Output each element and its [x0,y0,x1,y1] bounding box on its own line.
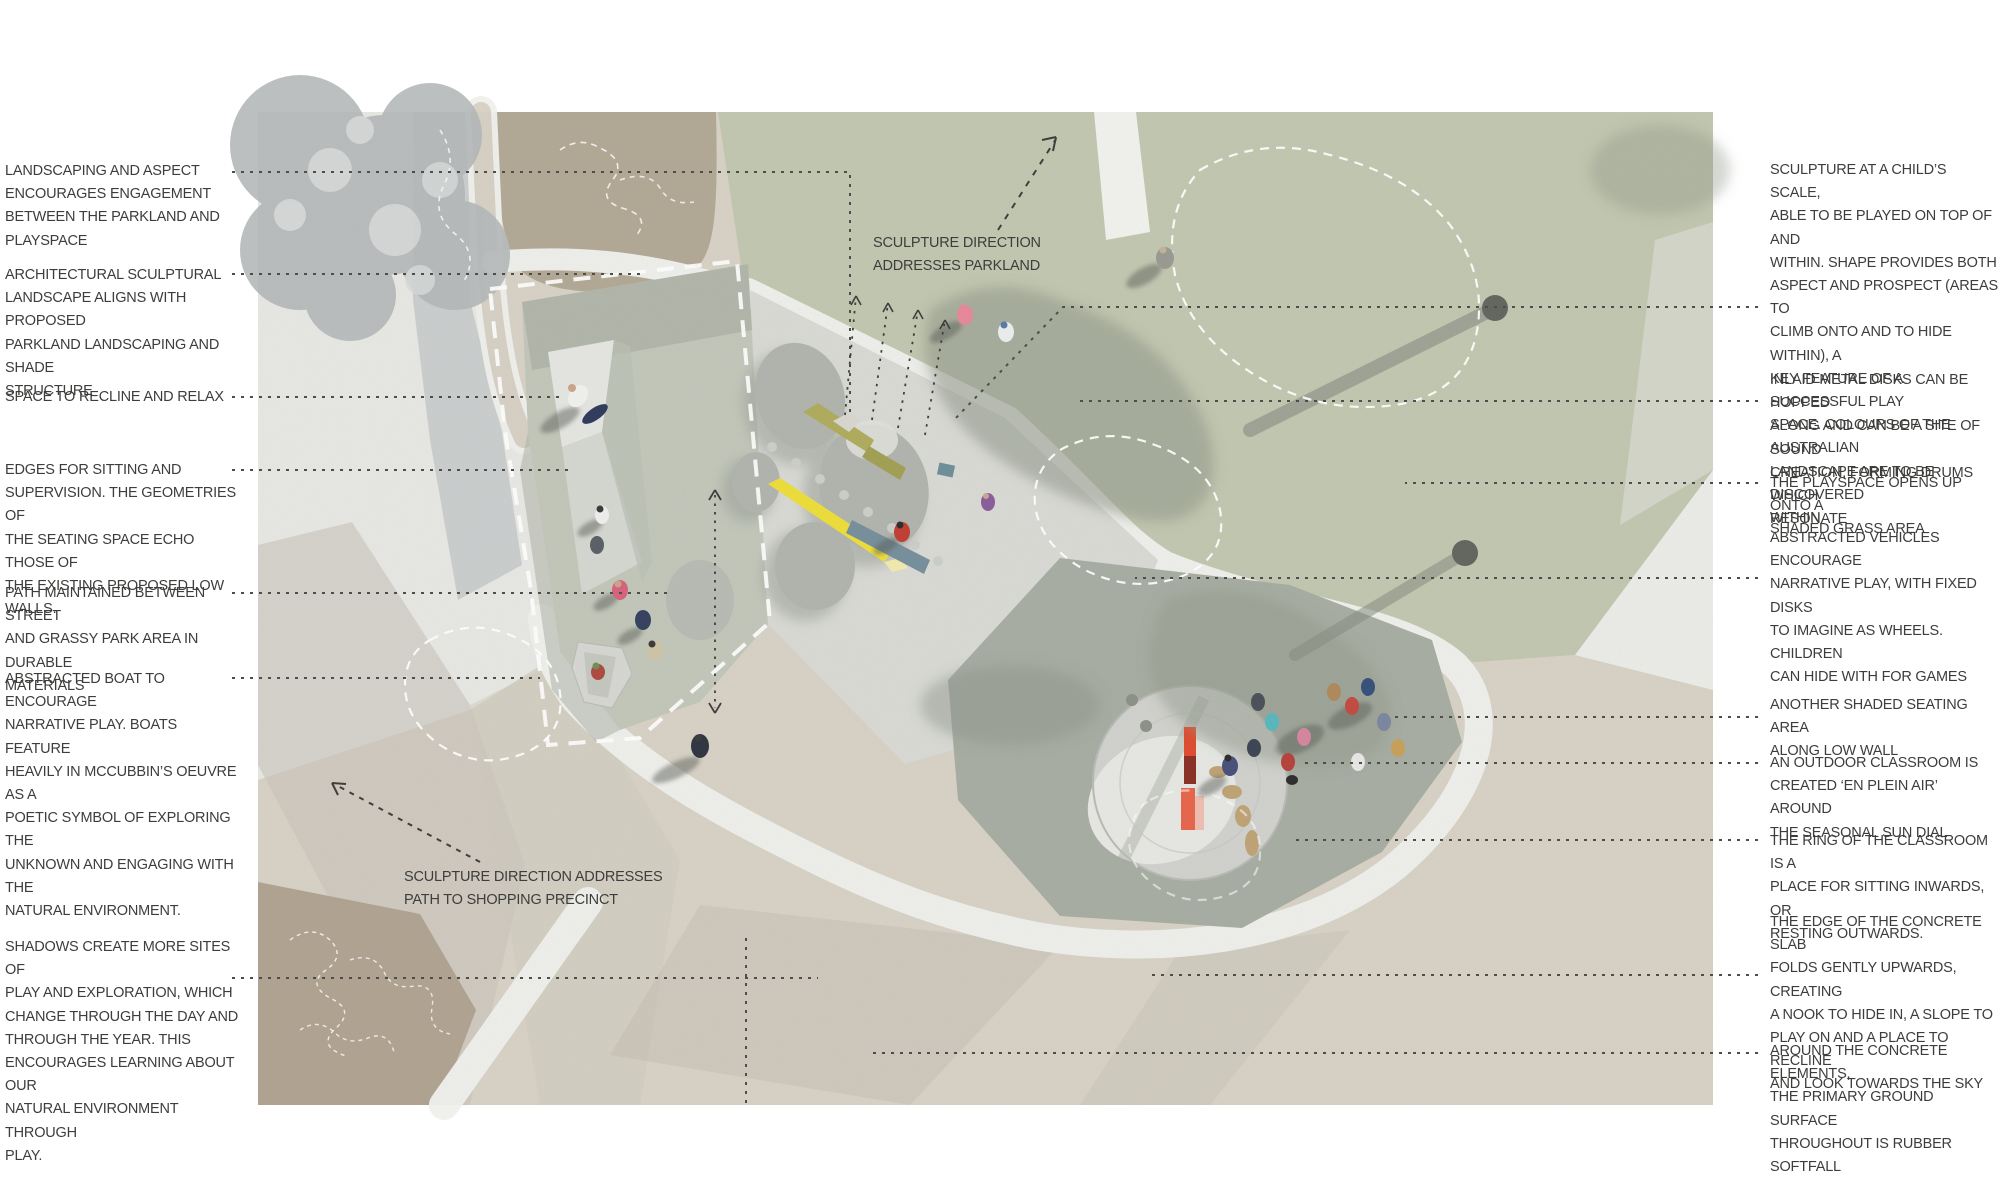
annotation-shadows-play: SHADOWS CREATE MORE SITES OF PLAY AND EX… [5,936,245,1168]
annotation-direction-shopping: SCULPTURE DIRECTION ADDRESSES PATH TO SH… [404,866,724,912]
annotation-architectural-landscape: ARCHITECTURAL SCULPTURAL LANDSCAPE ALIGN… [5,264,245,403]
annotation-space-recline: SPACE TO RECLINE AND RELAX [5,386,245,409]
annotation-abstracted-vehicles: ABSTRACTED VEHICLES ENCOURAGE NARRATIVE … [1770,527,1998,689]
annotation-rubber-softfall: AROUND THE CONCRETE ELEMENTS, THE PRIMAR… [1770,1040,1998,1179]
annotation-abstracted-boat: ABSTRACTED BOAT TO ENCOURAGE NARRATIVE P… [5,668,245,923]
annotation-landscaping-aspect: LANDSCAPING AND ASPECT ENCOURAGES ENGAGE… [5,160,245,253]
plan-illustration [0,0,2000,1200]
annotation-direction-parkland: SCULPTURE DIRECTION ADDRESSES PARKLAND [873,232,1053,278]
playspace-annotated-plan: LANDSCAPING AND ASPECT ENCOURAGES ENGAGE… [0,0,2000,1200]
